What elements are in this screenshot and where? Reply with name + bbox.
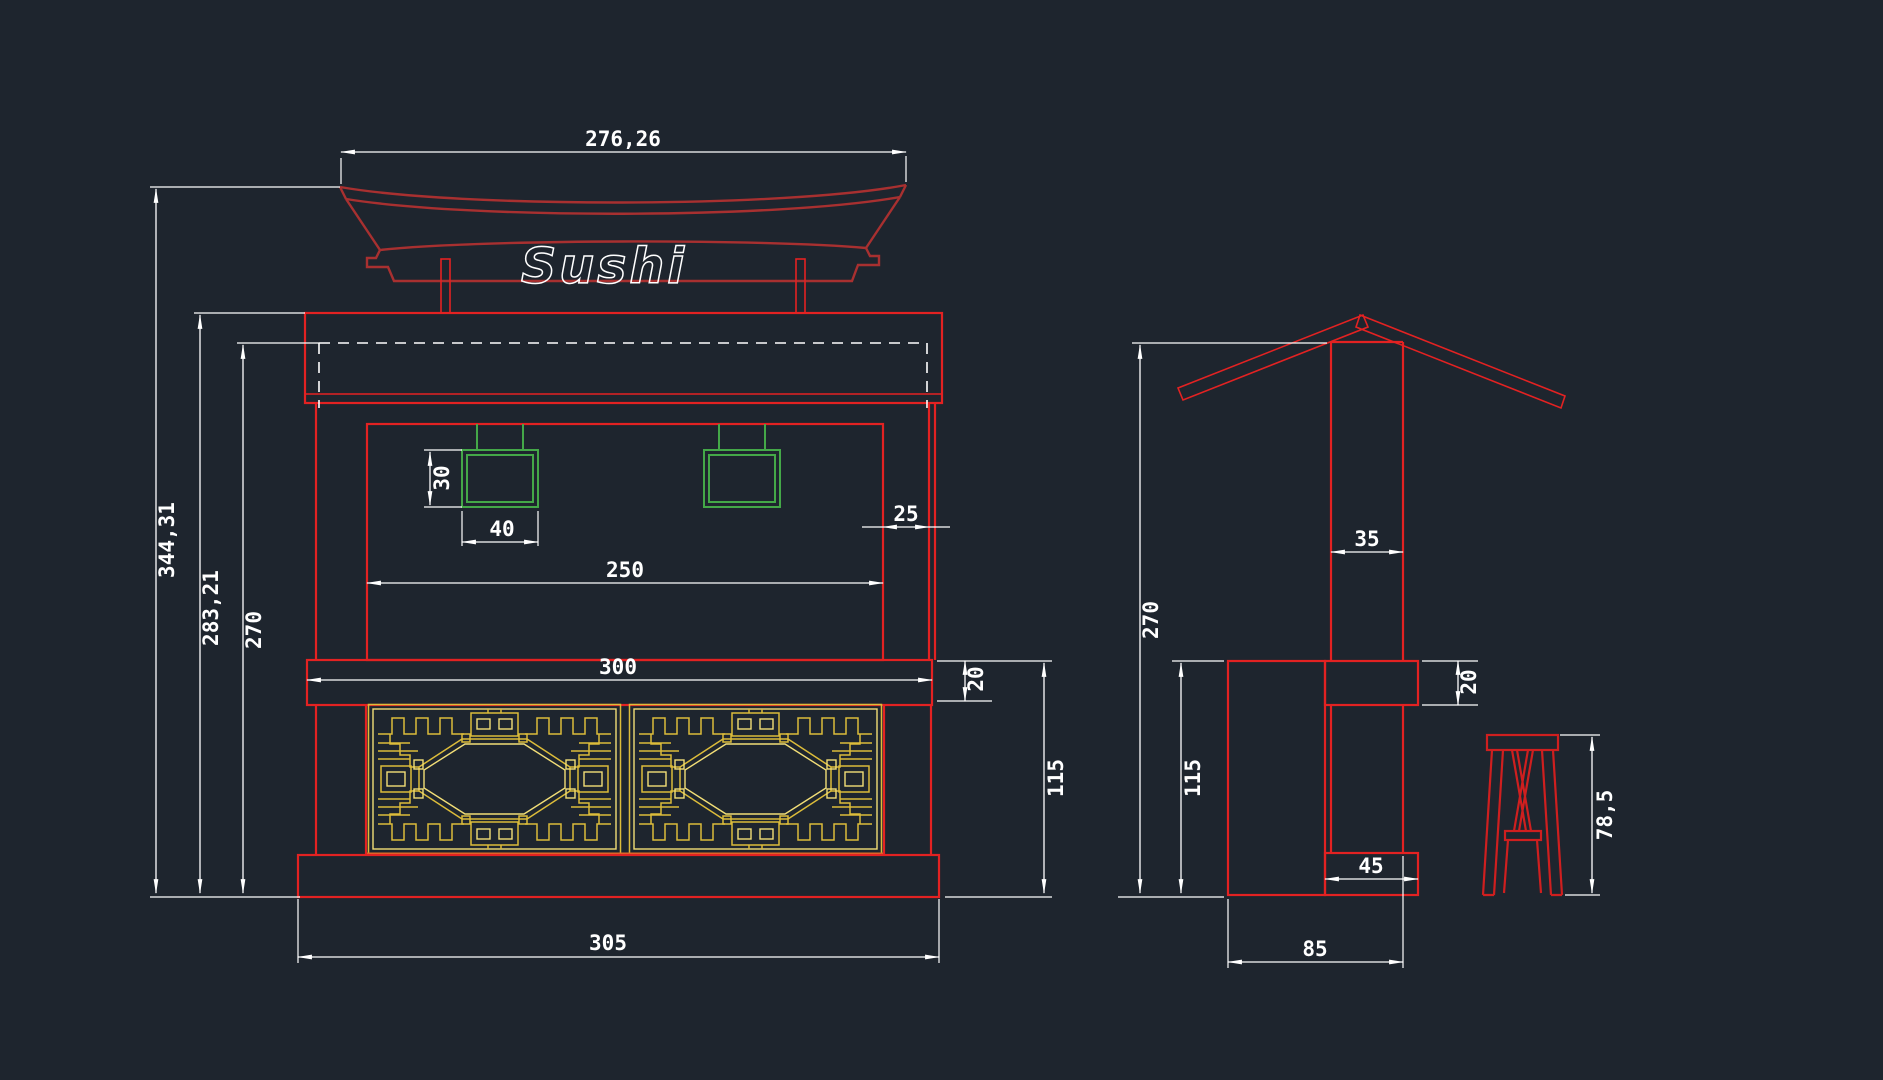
sushi-sign-text: Sushi [521, 238, 687, 295]
dim-text: 300 [599, 655, 637, 679]
dim-text: 35 [1354, 527, 1379, 551]
dim-text: 115 [1044, 759, 1068, 797]
model-space-background [0, 0, 1883, 1080]
dim-text: 344,31 [155, 502, 179, 578]
dim-text: 30 [430, 465, 454, 490]
dim-text: 305 [589, 931, 627, 955]
dim-text: 45 [1358, 854, 1383, 878]
dim-text: 78,5 [1593, 790, 1617, 841]
dim-text: 25 [893, 502, 918, 526]
dim-text: 85 [1302, 937, 1327, 961]
dim-text: 40 [489, 517, 514, 541]
dim-text: 20 [1457, 669, 1481, 694]
dim-text: 250 [606, 558, 644, 582]
dim-text: 115 [1181, 759, 1205, 797]
dim-text: 283,21 [199, 570, 223, 646]
dim-text: 276,26 [585, 127, 661, 151]
cad-canvas[interactable]: Sushi [0, 0, 1883, 1080]
dim-text: 270 [242, 611, 266, 649]
dim-text: 270 [1139, 601, 1163, 639]
dim-text: 20 [964, 666, 988, 691]
